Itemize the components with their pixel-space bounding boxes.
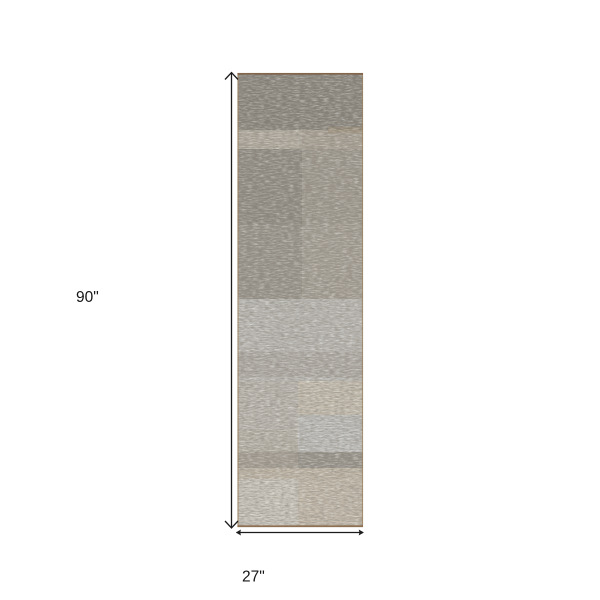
svg-text:90": 90" [76,289,99,306]
svg-text:27": 27" [242,569,265,586]
